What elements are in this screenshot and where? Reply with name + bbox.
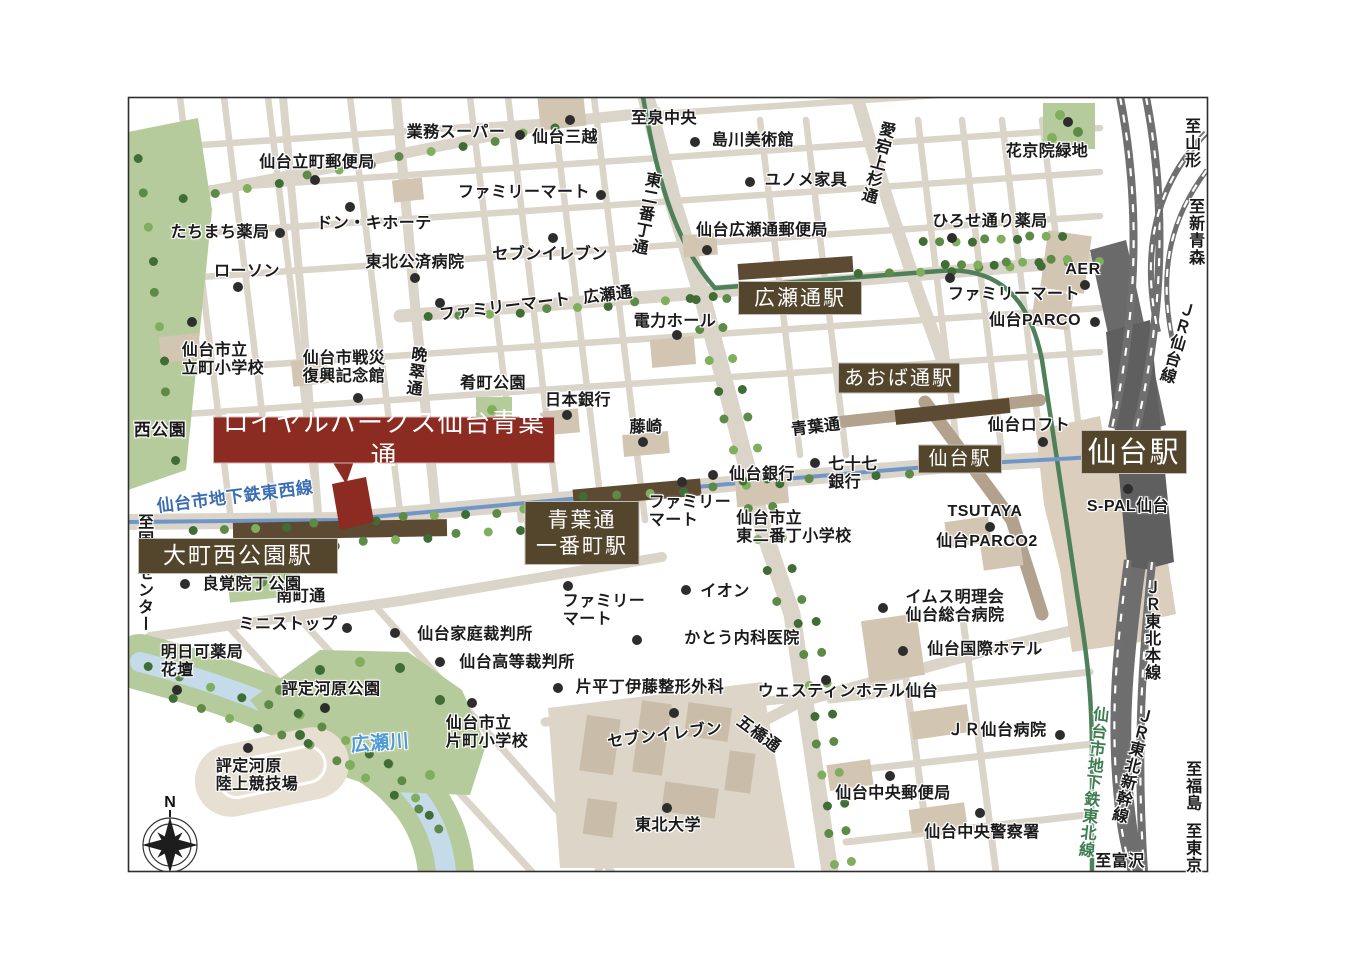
map-label: 至山形	[1181, 118, 1199, 169]
compass-north-label: N	[164, 794, 176, 812]
poi-marker	[390, 628, 400, 638]
poi-marker	[947, 233, 957, 243]
station-sendai-subway: 仙台駅	[918, 445, 1002, 474]
map-label: セブンイレブン	[607, 720, 724, 752]
poi-marker	[320, 703, 330, 713]
map-label: 西公園	[134, 420, 187, 439]
poi-marker	[172, 685, 182, 695]
poi-marker	[596, 190, 606, 200]
poi-marker	[1090, 317, 1100, 327]
poi-marker	[553, 683, 563, 693]
poi-marker	[1055, 730, 1065, 740]
map-label: ファミリー マート	[649, 494, 732, 530]
map-label: ファミリー マート	[563, 593, 646, 629]
map-label: TSUTAYA	[948, 503, 1023, 521]
map-label: 良覚院丁公園	[202, 576, 301, 594]
poi-marker	[945, 273, 955, 283]
station-aobadori: あおば通駅	[838, 363, 960, 394]
poi-marker	[878, 603, 888, 613]
map-label: ＪＲ東北本線	[1141, 579, 1159, 681]
poi-marker	[275, 228, 285, 238]
poi-marker	[677, 477, 687, 487]
map-label: 仙台市地下鉄東西線	[156, 478, 315, 516]
poi-marker	[353, 393, 363, 403]
map-label: 至泉中央	[631, 110, 697, 128]
poi-marker	[672, 330, 682, 340]
poi-marker	[562, 410, 572, 420]
map-label: 至東京	[1182, 823, 1200, 874]
map-label: ローソン	[214, 263, 280, 281]
poi-marker	[563, 581, 573, 591]
map-label: 仙台市立 立町小学校	[182, 342, 265, 378]
poi-marker	[243, 743, 253, 753]
map-label: 評定河原 陸上競技場	[216, 758, 299, 794]
map-label: 広瀬通	[582, 284, 633, 308]
map-label: ひろせ通り薬局	[932, 213, 1048, 231]
map-label: たちまち薬局	[170, 224, 269, 242]
poi-marker	[233, 282, 243, 292]
map-label: 仙台三越	[532, 129, 598, 147]
map-label: 仙台高等裁判所	[459, 654, 575, 672]
poi-marker	[1063, 117, 1073, 127]
map-label: ファミリーマート	[948, 286, 1080, 304]
map-label: ファミリーマート	[458, 184, 590, 202]
map-label: 明日可薬局 花壇	[161, 644, 244, 680]
map-label: 至福島	[1182, 761, 1200, 812]
poi-marker	[898, 646, 908, 656]
map-label: セブンイレブン	[492, 246, 608, 264]
poi-marker	[435, 657, 445, 667]
map-label: 島川美術館	[712, 132, 795, 150]
map-label: 青葉通	[790, 416, 841, 440]
map-label: 愛宕上杉通	[856, 119, 896, 206]
poi-marker	[702, 245, 712, 255]
map-label: 仙台ロフト	[988, 417, 1071, 435]
map-label: 仙台広瀬通郵便局	[696, 222, 828, 240]
station-aobadori-ichibancho: 青葉通 一番町駅	[525, 501, 640, 565]
map-label: 評定河原公園	[281, 681, 380, 699]
poi-marker	[1123, 484, 1133, 494]
map-label: 仙台家庭裁判所	[417, 626, 533, 644]
map-label: 仙台中央警察署	[924, 824, 1040, 842]
map-label: 仙台市立 東二番丁小学校	[736, 510, 852, 546]
poi-marker	[180, 579, 190, 589]
poi-marker	[885, 771, 895, 781]
map-label: 至富沢	[1095, 853, 1145, 871]
map-label: 仙台PARCO2	[936, 533, 1038, 551]
poi-marker	[690, 137, 700, 147]
map-label: AER	[1065, 261, 1100, 279]
map-label: 仙台市戦災 復興記念館	[303, 350, 386, 386]
map-label: ユノメ家具	[765, 172, 848, 190]
property-callout: ロイヤルパークス仙台青葉通	[213, 417, 555, 464]
poi-marker	[345, 202, 355, 212]
map-label: 至新青森	[1185, 198, 1203, 266]
station-sendai-jr: 仙台駅	[1081, 430, 1187, 474]
poi-marker	[565, 115, 575, 125]
map-label: ウェスティンホテル仙台	[758, 683, 939, 701]
map-label: かとう内科医院	[684, 630, 800, 648]
map-label: 仙台市地下鉄東北線	[1074, 705, 1108, 859]
poi-marker	[681, 585, 691, 595]
poi-marker	[467, 698, 477, 708]
map-label: 仙台銀行	[729, 466, 795, 484]
poi-marker	[187, 317, 197, 327]
map-label: ＪＲ東北新幹線	[1107, 705, 1153, 825]
map-label: 電力ホール	[634, 313, 717, 331]
poi-marker	[810, 458, 820, 468]
poi-marker	[435, 298, 445, 308]
map-label: 仙台国際ホテル	[927, 641, 1043, 659]
map-label: 肴町公園	[460, 375, 526, 393]
station-omachi-nishikoen: 大町西公園駅	[138, 538, 338, 574]
poi-marker	[745, 177, 755, 187]
poi-marker	[548, 233, 558, 243]
map-label: ＪＲ仙台線	[1155, 299, 1196, 386]
poi-marker	[410, 273, 420, 283]
map-label: 東二番丁通	[627, 170, 661, 257]
poi-marker	[821, 675, 831, 685]
map-label: 仙台立町郵便局	[259, 154, 375, 172]
map-label: 東北公済病院	[365, 254, 464, 272]
poi-marker	[638, 437, 648, 447]
map-label: 藤崎	[629, 419, 662, 437]
map-label: 業務スーパー	[407, 124, 506, 142]
map-label: 仙台PARCO	[989, 312, 1081, 330]
poi-marker	[1038, 437, 1048, 447]
poi-marker	[632, 635, 642, 645]
poi-marker	[985, 522, 995, 532]
map-label: 仙台市立 片町小学校	[446, 715, 529, 751]
poi-marker	[708, 470, 718, 480]
poi-marker	[975, 808, 985, 818]
poi-marker	[662, 803, 672, 813]
poi-marker	[1080, 280, 1090, 290]
map-label: 晩翠通	[401, 344, 426, 397]
map-label: 七十七 銀行	[828, 456, 878, 492]
access-map: 業務スーパー仙台三越仙台立町郵便局ファミリーマートドン・キホーテたちまち薬局東北…	[0, 0, 1348, 970]
map-label: ミニストップ	[238, 616, 337, 634]
map-label: 日本銀行	[545, 392, 611, 410]
poi-marker	[310, 175, 320, 185]
map-label: 片平丁伊藤整形外科	[576, 679, 725, 697]
map-label: ドン・キホーテ	[316, 215, 432, 233]
map-label: 仙台中央郵便局	[835, 785, 951, 803]
poi-marker	[342, 623, 352, 633]
map-label: ファミリーマート	[438, 291, 571, 325]
map-label: イオン	[700, 583, 750, 601]
map-label: 東北大学	[635, 817, 701, 835]
poi-marker	[515, 130, 525, 140]
map-labels: 業務スーパー仙台三越仙台立町郵便局ファミリーマートドン・キホーテたちまち薬局東北…	[0, 0, 1348, 970]
station-hirosedori: 広瀬通駅	[738, 281, 862, 315]
map-label: ＪＲ仙台病院	[947, 722, 1046, 740]
map-label: S-PAL仙台	[1087, 498, 1169, 516]
map-label: 広瀬川	[350, 731, 410, 757]
map-label: 五橋通	[733, 713, 784, 757]
map-label: イムス明理会 仙台総合病院	[905, 589, 1004, 625]
map-label: 花京院緑地	[1006, 143, 1089, 161]
poi-marker	[669, 708, 679, 718]
